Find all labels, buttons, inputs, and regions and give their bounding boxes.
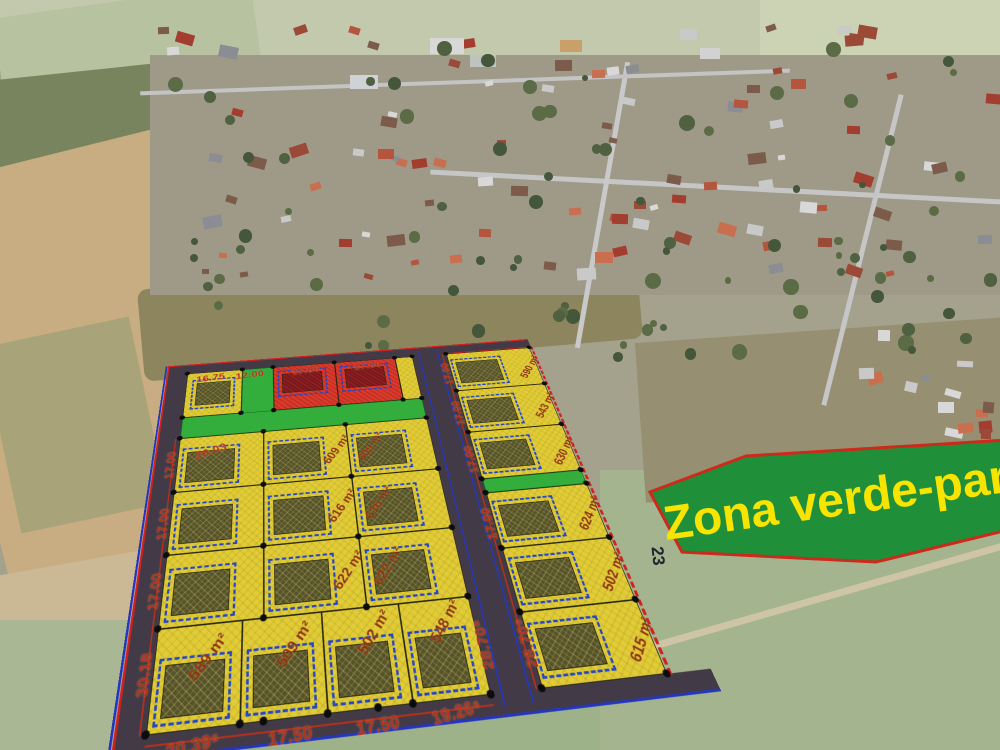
tree bbox=[660, 324, 667, 331]
house-roof bbox=[679, 28, 697, 39]
tree bbox=[826, 42, 841, 57]
house-roof bbox=[847, 126, 860, 134]
tree bbox=[377, 315, 390, 328]
aerial-screenshot: { "banner": { "label": "Zona verde-parc"… bbox=[0, 0, 1000, 750]
tree bbox=[481, 54, 494, 67]
house-roof bbox=[543, 261, 556, 270]
house-roof bbox=[607, 66, 620, 75]
tree bbox=[850, 253, 860, 263]
house-roof bbox=[569, 208, 581, 216]
tree bbox=[543, 105, 557, 119]
tree bbox=[793, 305, 808, 320]
building-footprint bbox=[479, 439, 535, 470]
tree bbox=[214, 301, 223, 310]
tree bbox=[783, 279, 798, 294]
house-roof bbox=[734, 99, 748, 109]
house-roof bbox=[339, 239, 352, 247]
building-footprint bbox=[171, 568, 231, 616]
house-roof bbox=[957, 360, 973, 367]
tree bbox=[599, 143, 612, 156]
house-roof bbox=[938, 402, 954, 413]
tree bbox=[190, 254, 198, 262]
house-roof bbox=[576, 267, 595, 280]
building-footprint bbox=[467, 397, 519, 424]
tree bbox=[472, 324, 486, 338]
house-roof bbox=[386, 234, 405, 247]
tree bbox=[903, 251, 915, 263]
tree bbox=[902, 323, 915, 336]
tree bbox=[834, 237, 842, 245]
building-footprint bbox=[274, 559, 331, 606]
house-roof bbox=[747, 85, 759, 93]
village-ground bbox=[150, 55, 1000, 295]
tree bbox=[885, 135, 896, 146]
tree bbox=[239, 229, 252, 242]
tree bbox=[859, 182, 866, 189]
tree bbox=[366, 77, 374, 85]
house-roof bbox=[378, 149, 393, 158]
tree bbox=[592, 144, 601, 153]
house-roof bbox=[799, 201, 817, 213]
house-roof bbox=[555, 60, 572, 71]
house-roof bbox=[361, 231, 370, 237]
survey-marker bbox=[526, 345, 532, 349]
house-roof bbox=[983, 402, 995, 414]
green-zone-banner: Zona verde-parc bbox=[648, 434, 1000, 582]
tree bbox=[793, 185, 801, 193]
building-footprint bbox=[273, 495, 326, 535]
house-roof bbox=[511, 185, 528, 196]
tree bbox=[950, 69, 957, 76]
tree bbox=[437, 202, 446, 211]
house-roof bbox=[748, 152, 768, 166]
house-roof bbox=[167, 47, 180, 56]
tree bbox=[448, 285, 459, 296]
house-roof bbox=[611, 214, 627, 224]
house-roof bbox=[595, 252, 612, 263]
tree bbox=[365, 342, 372, 349]
tree bbox=[553, 310, 565, 322]
tree bbox=[943, 308, 954, 319]
house-roof bbox=[978, 235, 992, 244]
house-roof bbox=[791, 79, 806, 89]
house-roof bbox=[478, 177, 494, 188]
house-roof bbox=[591, 70, 604, 78]
survey-marker bbox=[541, 381, 548, 385]
building-footprint bbox=[178, 504, 233, 545]
tree bbox=[310, 278, 323, 291]
tree bbox=[613, 352, 623, 362]
house-roof bbox=[219, 253, 228, 259]
tree bbox=[203, 282, 213, 292]
house-roof bbox=[449, 255, 462, 264]
tree bbox=[732, 344, 747, 359]
tree bbox=[955, 171, 966, 182]
house-roof bbox=[777, 154, 785, 160]
house-roof bbox=[353, 148, 365, 156]
house-roof bbox=[817, 205, 827, 212]
house-roof bbox=[202, 269, 209, 273]
tree bbox=[307, 249, 314, 256]
tree bbox=[476, 256, 485, 265]
tree bbox=[437, 41, 452, 56]
tree bbox=[880, 244, 887, 251]
tree bbox=[927, 275, 934, 282]
tree bbox=[685, 348, 696, 359]
tree bbox=[725, 277, 732, 284]
building-footprint bbox=[498, 500, 560, 536]
house-roof bbox=[704, 181, 718, 190]
tree bbox=[679, 115, 695, 131]
tree bbox=[871, 290, 884, 303]
tree bbox=[620, 341, 627, 348]
large-building bbox=[700, 48, 720, 59]
road-number-label: 23 bbox=[647, 546, 669, 567]
house-roof bbox=[672, 195, 686, 204]
tree bbox=[529, 195, 543, 209]
tree bbox=[943, 56, 954, 67]
tree bbox=[510, 264, 517, 271]
house-roof bbox=[878, 329, 891, 340]
tree bbox=[664, 237, 676, 249]
tree bbox=[636, 197, 645, 206]
large-building bbox=[560, 40, 582, 52]
house-roof bbox=[479, 229, 492, 237]
house-roof bbox=[985, 94, 1000, 105]
tree bbox=[770, 86, 784, 100]
building-footprint bbox=[455, 359, 504, 383]
house-roof bbox=[818, 238, 832, 247]
tree bbox=[768, 239, 781, 252]
house-roof bbox=[858, 367, 874, 378]
tree bbox=[984, 273, 997, 286]
house-roof bbox=[772, 67, 782, 74]
tree bbox=[523, 80, 536, 93]
tree bbox=[875, 272, 886, 283]
tree bbox=[493, 142, 507, 156]
house-roof bbox=[602, 122, 613, 130]
house-roof bbox=[425, 200, 435, 207]
subdivision-plan: 16.7512.0017.0017.0026.0317.0017.0017.00… bbox=[104, 337, 723, 750]
house-roof bbox=[157, 26, 169, 33]
house-roof bbox=[886, 239, 902, 250]
tree bbox=[514, 255, 522, 263]
building-footprint bbox=[273, 441, 322, 475]
tree bbox=[650, 320, 657, 327]
